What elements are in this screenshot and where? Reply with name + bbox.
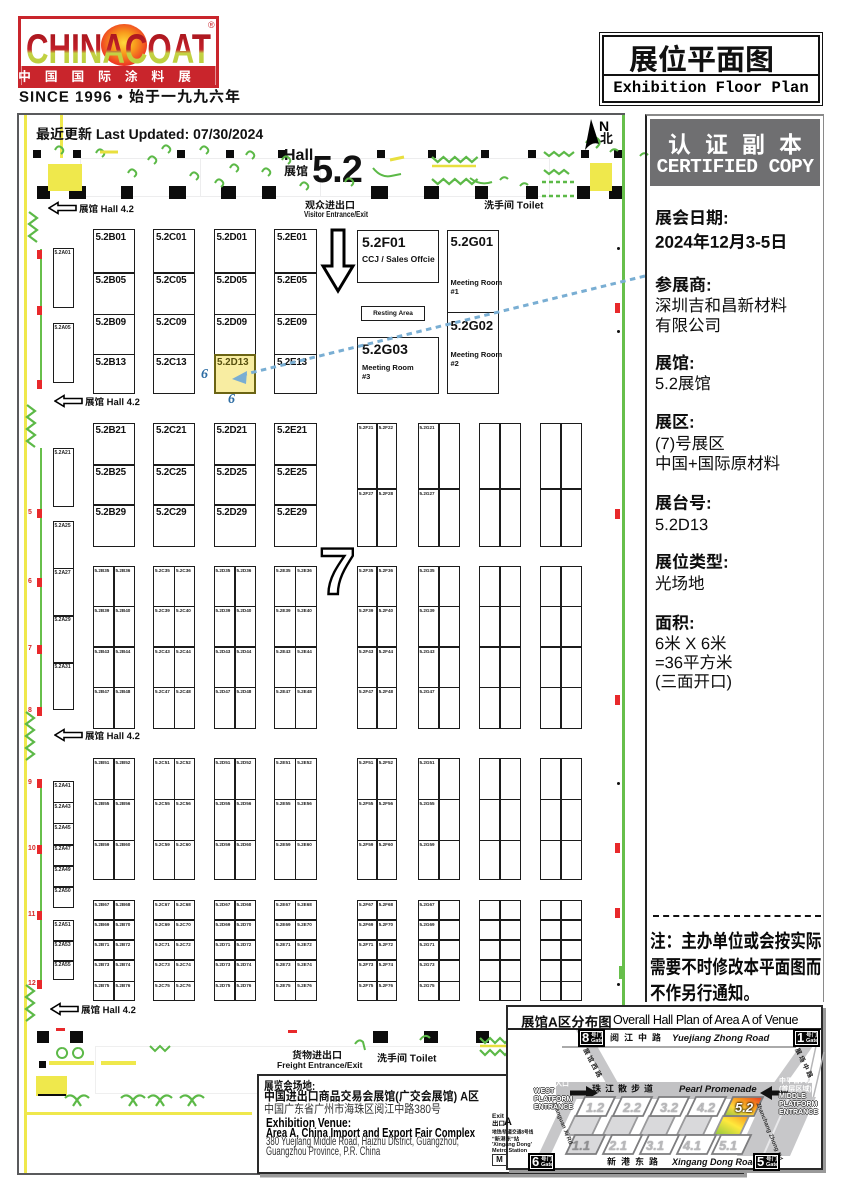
svg-text:CHINACOAT: CHINACOAT (26, 25, 211, 72)
svg-text:®: ® (208, 20, 215, 30)
